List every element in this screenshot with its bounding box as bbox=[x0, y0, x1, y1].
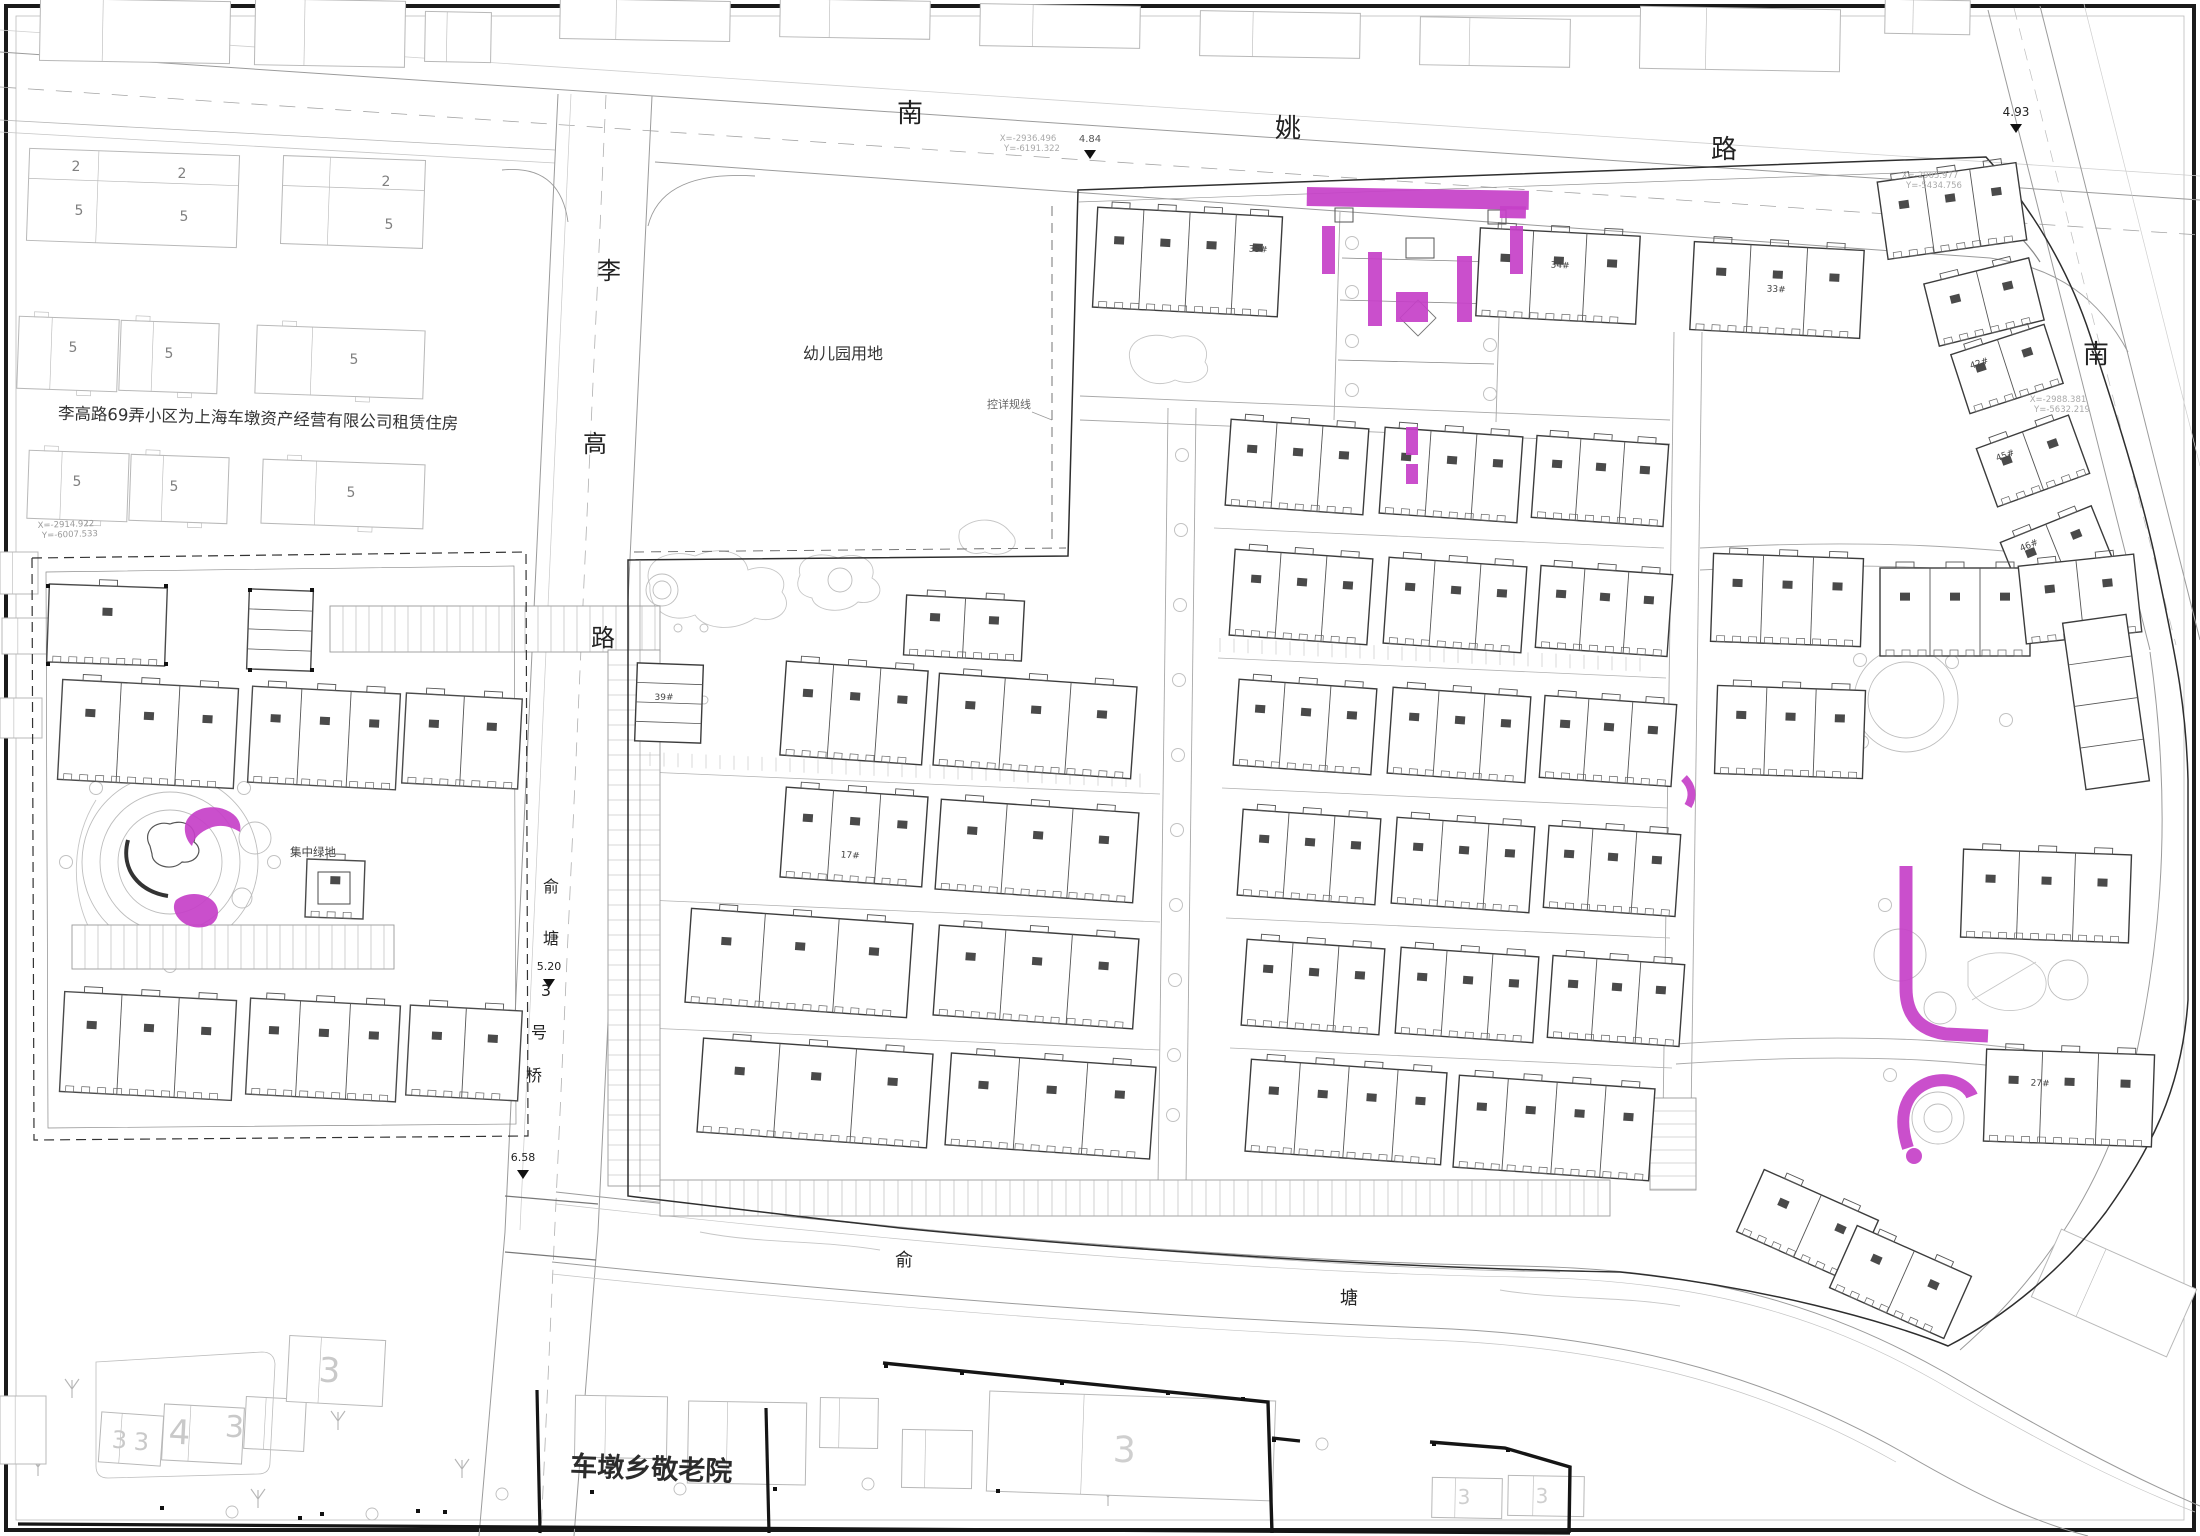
site-boundary-line bbox=[1078, 170, 1984, 202]
elevation-marker-icon bbox=[2010, 124, 2022, 133]
magenta-highlight bbox=[1500, 206, 1526, 218]
road-line bbox=[1186, 408, 1196, 1186]
landscape-path bbox=[1968, 953, 2046, 1011]
plan-text-label: 2 bbox=[382, 174, 391, 190]
landscape-ring bbox=[366, 1508, 378, 1520]
building-footprint bbox=[47, 578, 168, 666]
plan-text-label: Y=-6191.322 bbox=[1003, 144, 1060, 154]
survey-dot-icon bbox=[310, 588, 314, 592]
building-footprint bbox=[248, 680, 401, 790]
survey-dot-icon bbox=[46, 662, 50, 666]
building-footprint bbox=[425, 11, 492, 62]
elevation-marker-icon bbox=[1084, 150, 1096, 159]
plan-text-label: 车墩乡敬老院 bbox=[570, 1450, 733, 1488]
magenta-highlight bbox=[1906, 1148, 1922, 1164]
landscape-path bbox=[1500, 1290, 1680, 1306]
plan-text-label: 李高路69弄小区为上海车墩资产经营有限公司租赁住房 bbox=[58, 404, 459, 433]
building-footprint bbox=[780, 0, 931, 39]
road-line bbox=[1032, 412, 1052, 420]
building-footprint bbox=[305, 853, 365, 919]
tree-icon bbox=[1169, 974, 1182, 987]
building-footprint bbox=[560, 0, 731, 41]
tree-icon bbox=[1879, 899, 1892, 912]
plan-text-label: 姚 bbox=[1275, 114, 1301, 144]
building-footprint bbox=[1476, 222, 1641, 324]
landscape-ring bbox=[496, 1488, 508, 1500]
survey-dot-icon bbox=[310, 668, 314, 672]
magenta-highlight bbox=[1510, 226, 1523, 274]
plan-text-label: 3 bbox=[133, 1428, 150, 1457]
landscape-ring bbox=[226, 1506, 238, 1518]
plan-text-label: 5 bbox=[350, 352, 359, 368]
building-footprint bbox=[1539, 690, 1677, 787]
plan-text-label: 塘 bbox=[1340, 1288, 1358, 1309]
building-footprint bbox=[1547, 950, 1685, 1047]
building-footprint bbox=[255, 320, 426, 404]
tree-icon bbox=[1884, 1069, 1897, 1082]
building-footprint bbox=[1830, 1220, 1974, 1338]
tree-icon bbox=[1170, 899, 1183, 912]
survey-dot-icon bbox=[996, 1489, 1000, 1493]
road-line bbox=[1080, 396, 1670, 420]
magenta-highlight bbox=[1406, 464, 1418, 484]
landscape-ring bbox=[674, 624, 682, 632]
landscape-path bbox=[648, 551, 786, 628]
building-footprint bbox=[1543, 820, 1681, 917]
building-footprint bbox=[1531, 430, 1669, 527]
building-footprint bbox=[1245, 1053, 1447, 1164]
tree-icon bbox=[1346, 286, 1359, 299]
landscape-ring bbox=[653, 581, 671, 599]
tree-icon bbox=[1854, 654, 1867, 667]
plan-text-label: 塘 bbox=[543, 929, 559, 948]
tree-icon bbox=[1484, 339, 1497, 352]
building-footprint bbox=[933, 919, 1139, 1029]
road-line bbox=[505, 1252, 596, 1260]
landscape-ring bbox=[646, 574, 678, 606]
property-thick-line bbox=[537, 1390, 540, 1533]
road-line bbox=[1226, 918, 1670, 938]
landscape-path bbox=[1129, 335, 1207, 383]
survey-dot-icon bbox=[298, 1516, 302, 1520]
tree-icon bbox=[1167, 1109, 1180, 1122]
building-footprint bbox=[780, 655, 929, 765]
landscape-ring bbox=[1316, 1438, 1328, 1450]
building-footprint bbox=[1383, 551, 1527, 652]
building-footprint bbox=[254, 0, 405, 67]
building-footprint bbox=[1711, 547, 1864, 646]
parking-strip bbox=[660, 1180, 1610, 1216]
plan-text-label: X=-2936.496 bbox=[1000, 134, 1057, 144]
entrance-detail-line bbox=[1338, 360, 1494, 364]
road-line bbox=[1218, 658, 1666, 678]
building-footprint bbox=[945, 1047, 1156, 1159]
plan-text-label: 3 bbox=[541, 981, 551, 1000]
landscape-ring bbox=[700, 624, 708, 632]
plan-text-label: 39# bbox=[655, 693, 674, 703]
building-footprint bbox=[2063, 614, 2150, 789]
building-footprint bbox=[58, 673, 239, 788]
tree-icon bbox=[1168, 1049, 1181, 1062]
plan-text-label: 号 bbox=[531, 1023, 547, 1042]
landscape-ring bbox=[1912, 1092, 1964, 1144]
tree-icon bbox=[238, 782, 251, 795]
building-footprint bbox=[1229, 543, 1373, 644]
magenta-highlight bbox=[185, 807, 241, 846]
landscape-path bbox=[126, 840, 168, 896]
landscape-ring bbox=[82, 774, 258, 950]
plan-text-label: 南 bbox=[2083, 340, 2109, 370]
magenta-highlight bbox=[1457, 256, 1472, 322]
tree-icon bbox=[1171, 824, 1184, 837]
road-line bbox=[502, 169, 568, 222]
building-footprint bbox=[1535, 560, 1673, 657]
plan-text-label: 17# bbox=[840, 850, 860, 861]
survey-dot-icon bbox=[416, 1509, 420, 1513]
building-footprint bbox=[1639, 6, 1840, 71]
tree-icon bbox=[1173, 674, 1186, 687]
building-footprint bbox=[2031, 1229, 2196, 1357]
entrance-detail-line bbox=[1335, 208, 1353, 222]
plan-text-label: 5 bbox=[69, 340, 78, 356]
road-line bbox=[1690, 332, 1702, 1190]
plan-text-label: 5 bbox=[170, 479, 179, 495]
magenta-highlight bbox=[1684, 778, 1691, 806]
plan-text-label: 3 bbox=[318, 1350, 342, 1391]
plan-text-label: 俞 bbox=[543, 877, 559, 896]
building-footprint bbox=[261, 454, 425, 534]
site-boundary-line bbox=[634, 548, 1066, 552]
plan-text-label: 2 bbox=[178, 166, 187, 182]
building-footprint bbox=[26, 148, 239, 247]
road-line bbox=[505, 1196, 598, 1204]
entrance-detail-line bbox=[1406, 238, 1434, 258]
plan-text-label: 控详规线 bbox=[987, 397, 1031, 411]
building-footprint bbox=[1233, 673, 1377, 774]
plan-text-label: 4.93 bbox=[2003, 105, 2030, 119]
road-line bbox=[1222, 788, 1668, 808]
survey-dot-icon bbox=[248, 588, 252, 592]
tree-symbol-icon bbox=[455, 1459, 469, 1478]
plan-text-label: 5 bbox=[180, 209, 189, 225]
road-line bbox=[479, 94, 558, 1536]
plan-text-label: 2 bbox=[72, 159, 81, 175]
survey-dot-icon bbox=[1166, 1391, 1170, 1395]
building-footprint bbox=[406, 999, 523, 1101]
building-footprint bbox=[98, 1412, 163, 1466]
survey-dot-icon bbox=[1060, 1381, 1064, 1385]
tree-icon bbox=[268, 856, 281, 869]
landscape-ring bbox=[1868, 662, 1944, 738]
tree-icon bbox=[1346, 237, 1359, 250]
plan-text-label: 南 bbox=[897, 99, 923, 129]
landscape-path bbox=[798, 555, 880, 610]
plan-text-label: 6.58 bbox=[511, 1151, 536, 1164]
road-line bbox=[552, 1262, 2088, 1536]
building-footprint bbox=[0, 1396, 46, 1464]
tree-icon bbox=[2000, 714, 2013, 727]
survey-dot-icon bbox=[1506, 1448, 1510, 1452]
plan-text-label: Y=-5434.756 bbox=[1905, 181, 1962, 191]
tree-icon bbox=[1174, 599, 1187, 612]
building-footprint bbox=[780, 781, 928, 887]
tree-icon bbox=[1346, 384, 1359, 397]
building-footprint bbox=[0, 698, 42, 738]
building-footprint bbox=[2, 618, 50, 654]
site-plan-sheet: 南姚路李高路南幼儿园用地控详规线李高路69弄小区为上海车墩资产经营有限公司租赁住… bbox=[0, 0, 2200, 1536]
landscape-ring bbox=[1924, 1104, 1952, 1132]
building-footprint bbox=[1715, 679, 1866, 778]
landscape-ring bbox=[232, 888, 252, 908]
building-footprint bbox=[1387, 681, 1531, 782]
building-footprint bbox=[1961, 843, 2132, 943]
building-footprint bbox=[246, 992, 401, 1102]
plan-text-label: 3 bbox=[111, 1426, 128, 1455]
property-thick-line bbox=[1272, 1438, 1300, 1441]
building-footprint bbox=[1391, 811, 1535, 912]
tree-icon bbox=[1176, 449, 1189, 462]
road-line bbox=[648, 175, 755, 226]
plan-text-label: 幼儿园用地 bbox=[803, 344, 883, 363]
landscape-path bbox=[1972, 962, 2036, 1000]
landscape-path bbox=[959, 520, 1015, 554]
plan-text-label: Y=-6007.533 bbox=[41, 529, 98, 541]
plan-text-label: 3 bbox=[1536, 1484, 1549, 1508]
building-footprint bbox=[1237, 803, 1381, 904]
plan-text-label: 5 bbox=[75, 203, 84, 219]
plan-text-label: X=-2988.381 bbox=[2030, 395, 2087, 405]
survey-dot-icon bbox=[443, 1510, 447, 1514]
building-footprint bbox=[244, 1396, 307, 1451]
plan-text-label: 桥 bbox=[526, 1066, 542, 1085]
plan-text-label: 李 bbox=[597, 257, 621, 285]
building-footprint bbox=[1395, 941, 1539, 1042]
plan-text-label: 路 bbox=[591, 624, 615, 652]
tree-symbol-icon bbox=[251, 1489, 265, 1508]
plan-text-label: 5.20 bbox=[537, 960, 562, 973]
building-footprint bbox=[935, 793, 1139, 903]
road-line bbox=[0, 120, 555, 150]
survey-dot-icon bbox=[46, 584, 50, 588]
survey-dot-icon bbox=[1241, 1397, 1245, 1401]
magenta-highlight bbox=[1368, 252, 1382, 326]
tree-icon bbox=[90, 782, 103, 795]
building-footprint bbox=[1453, 1069, 1655, 1180]
building-footprint bbox=[1983, 1043, 2154, 1147]
plan-text-label: 35# bbox=[1248, 245, 1267, 256]
survey-dot-icon bbox=[773, 1487, 777, 1491]
survey-dot-icon bbox=[960, 1371, 964, 1375]
survey-dot-icon bbox=[884, 1364, 888, 1368]
plan-text-label: 5 bbox=[347, 485, 356, 501]
plan-text-label: 4 bbox=[168, 1412, 192, 1453]
landscape-ring bbox=[2048, 960, 2088, 1000]
building-footprint bbox=[1200, 11, 1361, 59]
road-line bbox=[541, 95, 606, 1534]
survey-dot-icon bbox=[164, 662, 168, 666]
building-footprint bbox=[60, 986, 237, 1101]
building-footprint bbox=[1880, 562, 2030, 656]
plan-text-label: 3 bbox=[1458, 1485, 1471, 1509]
plan-text-label: 5 bbox=[385, 217, 394, 233]
tree-symbol-icon bbox=[65, 1379, 79, 1398]
magenta-highlight bbox=[1322, 226, 1335, 274]
parking-strip bbox=[72, 925, 394, 969]
tree-icon bbox=[60, 856, 73, 869]
plan-text-label: 俞 bbox=[895, 1250, 913, 1271]
survey-dot-icon bbox=[248, 668, 252, 672]
plan-text-label: 路 bbox=[1711, 135, 1737, 165]
landscape-ring bbox=[828, 568, 852, 592]
road-line bbox=[1214, 528, 1664, 548]
building-footprint bbox=[820, 1397, 879, 1448]
building-footprint bbox=[933, 667, 1137, 779]
landscape-ring bbox=[1854, 648, 1958, 752]
building-footprint bbox=[1093, 201, 1283, 317]
building-footprint bbox=[402, 687, 523, 789]
building-footprint bbox=[901, 1429, 972, 1488]
building-footprint bbox=[685, 902, 913, 1017]
plan-text-label: 3 bbox=[1112, 1430, 1136, 1472]
plan-text-label: 3 bbox=[224, 1410, 245, 1446]
building-footprint bbox=[904, 589, 1025, 661]
building-footprint bbox=[1974, 409, 2089, 506]
survey-dot-icon bbox=[320, 1512, 324, 1516]
magenta-highlight bbox=[174, 894, 218, 927]
plan-text-label: 5 bbox=[165, 346, 174, 362]
road-line bbox=[2084, 4, 2200, 466]
building-footprint bbox=[1420, 17, 1571, 68]
magenta-highlight bbox=[1396, 292, 1428, 322]
parking-strip bbox=[1650, 1098, 1696, 1190]
survey-dot-icon bbox=[1432, 1442, 1436, 1446]
plan-text-label: 33# bbox=[1766, 285, 1785, 296]
road-line bbox=[1158, 408, 1168, 1186]
site-plan-drawing[interactable]: 南姚路李高路南幼儿园用地控详规线李高路69弄小区为上海车墩资产经营有限公司租赁住… bbox=[0, 0, 2200, 1536]
plan-text-label: Y=-5632.219 bbox=[2033, 405, 2090, 415]
landscape-ring bbox=[862, 1478, 874, 1490]
building-footprint bbox=[129, 449, 230, 528]
magenta-highlight bbox=[1406, 427, 1418, 455]
plan-text-label: X=-2965.977 bbox=[1902, 171, 1959, 181]
building-footprint bbox=[39, 0, 230, 64]
plan-text-label: 34# bbox=[1550, 261, 1569, 272]
survey-dot-icon bbox=[164, 584, 168, 588]
building-footprint bbox=[635, 663, 704, 743]
building-footprint bbox=[1379, 421, 1523, 522]
tree-icon bbox=[1175, 524, 1188, 537]
building-footprint bbox=[1241, 933, 1385, 1034]
building-footprint bbox=[1885, 0, 1971, 35]
plan-text-label: 5 bbox=[73, 474, 82, 490]
elevation-marker-icon bbox=[517, 1170, 529, 1179]
magenta-highlight bbox=[1307, 187, 1529, 210]
entrance-detail-line bbox=[1342, 258, 1498, 262]
landscape-ring bbox=[1924, 992, 1956, 1024]
plan-text-label: 27# bbox=[2030, 1079, 2049, 1090]
tree-icon bbox=[1946, 656, 1959, 669]
tree-symbol-icon bbox=[331, 1411, 345, 1430]
building-footprint bbox=[574, 1395, 667, 1459]
building-footprint bbox=[247, 589, 314, 671]
plan-text-label: 4.84 bbox=[1079, 134, 1101, 145]
building-footprint bbox=[281, 156, 426, 249]
building-footprint bbox=[1225, 413, 1369, 514]
magenta-highlight bbox=[1903, 1080, 1972, 1148]
plan-text-label: 集中绿地 bbox=[290, 845, 336, 859]
plan-text-label: 高 bbox=[583, 430, 607, 458]
building-footprint bbox=[697, 1032, 933, 1148]
survey-dot-icon bbox=[590, 1490, 594, 1494]
building-footprint bbox=[980, 4, 1141, 49]
survey-dot-icon bbox=[1272, 1438, 1276, 1442]
tree-icon bbox=[1172, 749, 1185, 762]
tree-icon bbox=[1346, 335, 1359, 348]
tree-icon bbox=[1484, 388, 1497, 401]
survey-dot-icon bbox=[160, 1506, 164, 1510]
